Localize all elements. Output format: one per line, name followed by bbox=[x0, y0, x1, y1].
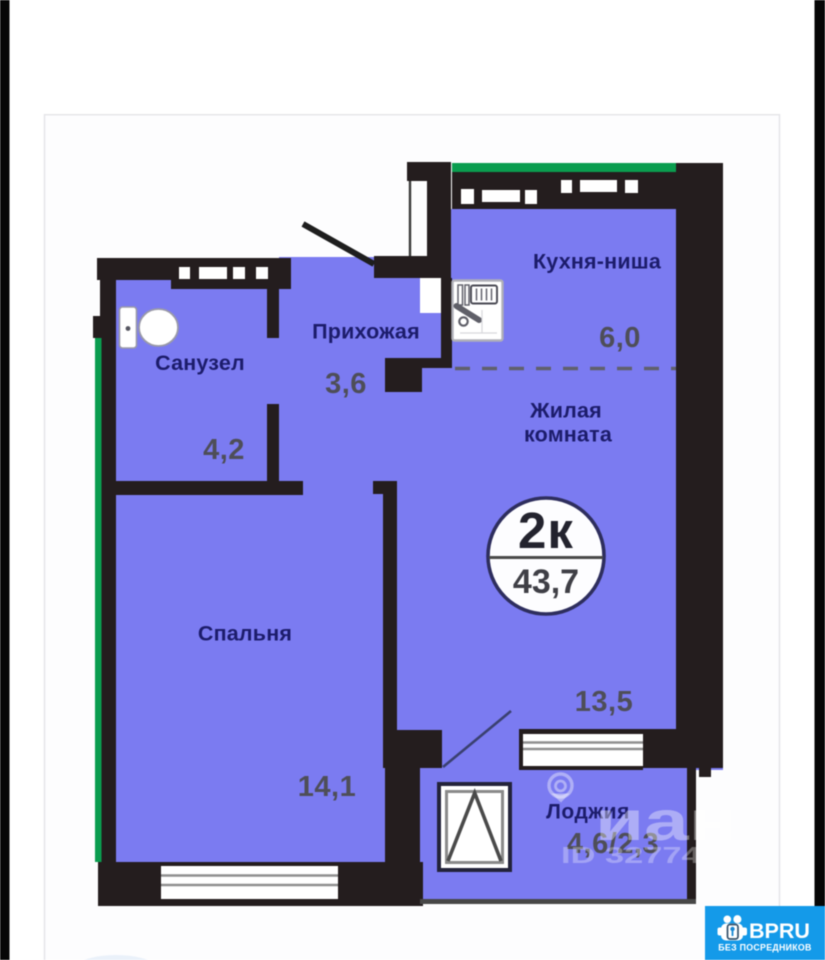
svg-text:2к: 2к bbox=[518, 502, 574, 559]
svg-text:Санузел: Санузел bbox=[155, 351, 245, 375]
svg-text:Кухня-ниша: Кухня-ниша bbox=[533, 250, 662, 274]
svg-text:Жилая: Жилая bbox=[529, 399, 602, 423]
svg-text:БЕЗ ПОСРЕДНИКОВ: БЕЗ ПОСРЕДНИКОВ bbox=[718, 943, 811, 953]
svg-text:комната: комната bbox=[524, 423, 613, 447]
svg-text:BPRU: BPRU bbox=[749, 919, 810, 943]
svg-text:6,0: 6,0 bbox=[599, 322, 641, 354]
svg-text:ID 3277443: ID 3277443 bbox=[561, 842, 739, 868]
svg-text:4,2: 4,2 bbox=[203, 434, 245, 466]
svg-text:14,1: 14,1 bbox=[298, 771, 356, 803]
svg-text:3,6: 3,6 bbox=[325, 368, 367, 400]
svg-text:13,5: 13,5 bbox=[575, 686, 633, 718]
svg-text:43,7: 43,7 bbox=[513, 563, 579, 601]
svg-text:Прихожая: Прихожая bbox=[312, 320, 420, 344]
svg-text:Спальня: Спальня bbox=[198, 622, 292, 646]
